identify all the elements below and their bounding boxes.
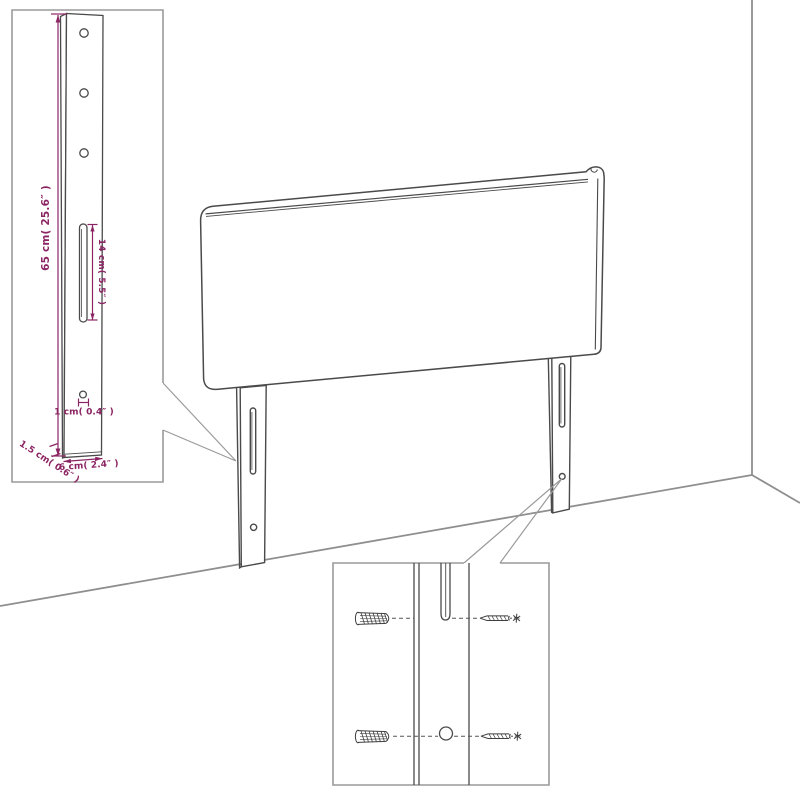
dimension-label-height: 65 cm( 25.6″ ) [40,185,52,271]
right-leg [548,356,571,513]
right-leg-hole [559,474,565,480]
headboard-panel [201,167,605,390]
left-leg-slot [250,408,255,474]
right-leg-slot [559,364,564,428]
headboard-assembly-diagram: 65 cm( 25.6″ ) 14 cm( 5.5″ ) 1 cm( 0.4″ … [0,0,800,800]
dimension-label-hole: 1 cm( 0.4″ ) [54,408,114,418]
floor-edge-right [752,475,800,503]
bracket-small-hole [80,391,87,398]
left-leg-hole [251,524,257,530]
leg-detail-inset: 65 cm( 25.6″ ) 14 cm( 5.5″ ) 1 cm( 0.4″ … [12,10,163,485]
leg-detail-callout-lines [163,383,236,461]
wall-plug-icon [355,612,388,624]
mounting-detail-inset [333,563,549,785]
leg-detail-bracket [61,14,104,459]
bracket-hole-3 [80,149,88,157]
headboard-front-face [201,167,605,390]
bracket-hole-2 [80,89,88,97]
mounting-detail-callout-lines [464,479,562,564]
bracket-hole-1 [80,29,88,37]
wall-plug-icon [355,730,388,742]
dimension-label-slot: 14 cm( 5.5″ ) [96,239,106,305]
bracket-slot [80,224,88,322]
left-leg [237,385,267,568]
diagram-canvas: 65 cm( 25.6″ ) 14 cm( 5.5″ ) 1 cm( 0.4″ … [0,0,800,800]
